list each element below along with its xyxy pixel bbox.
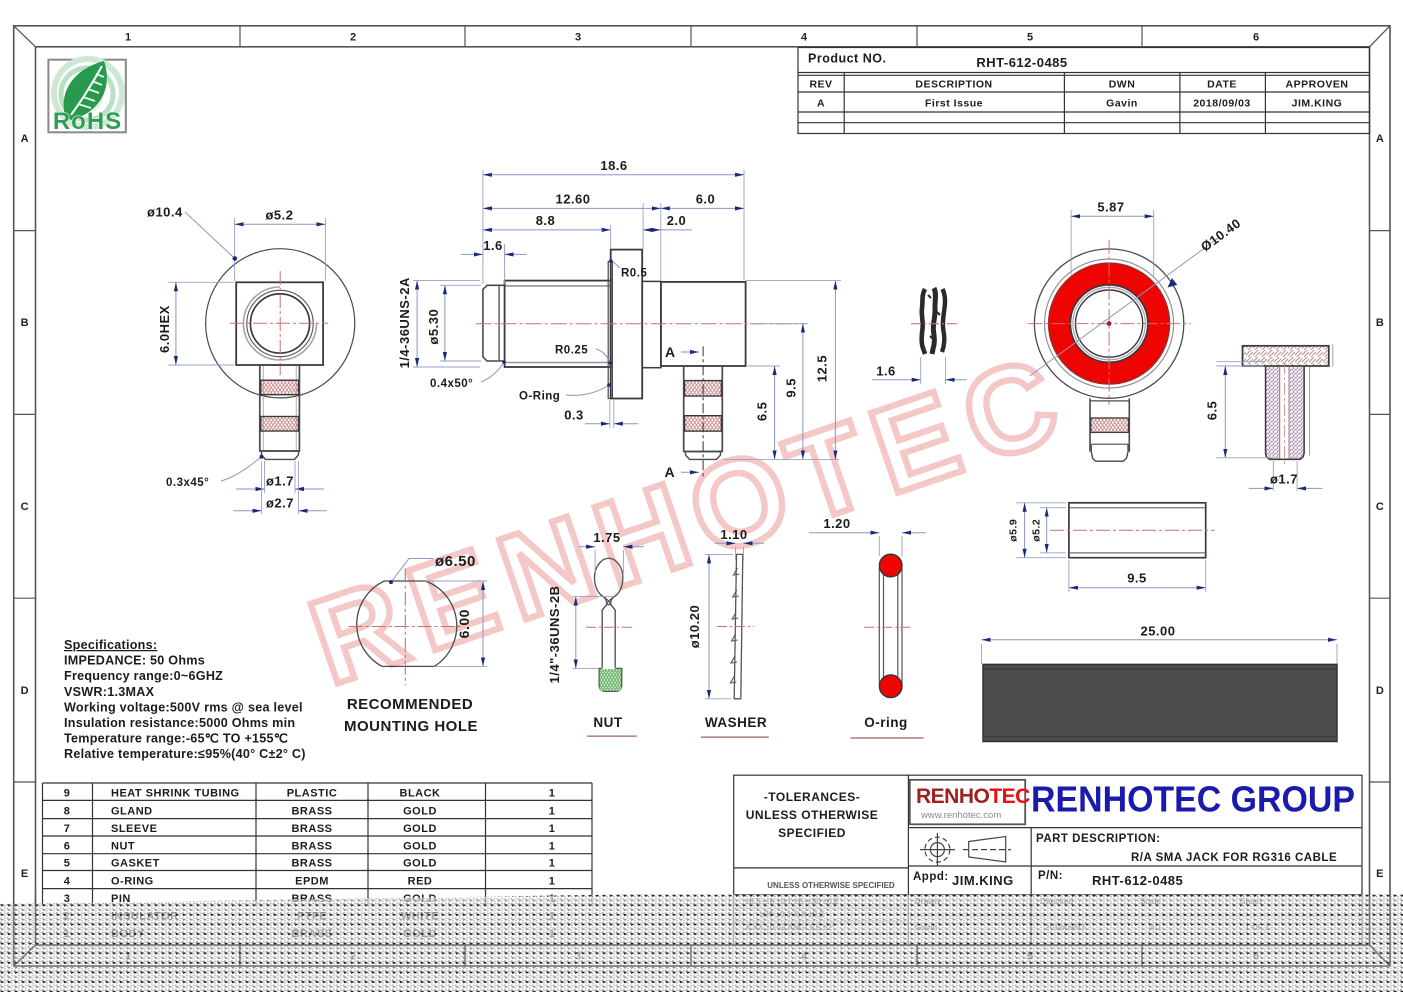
svg-text:1/4-36UNS-2A: 1/4-36UNS-2A (397, 277, 412, 368)
svg-text:A: A (665, 344, 676, 360)
svg-text:C: C (1376, 501, 1384, 513)
svg-text:Insulation resistance:5000 Ohm: Insulation resistance:5000 Ohms min (64, 716, 295, 730)
svg-text:1.20: 1.20 (823, 516, 850, 531)
svg-text:D: D (1376, 685, 1384, 697)
svg-text:ø6.50: ø6.50 (435, 553, 476, 570)
svg-text:18.6: 18.6 (600, 158, 627, 173)
svg-text:RHT-612-0485: RHT-612-0485 (1092, 873, 1183, 888)
svg-text:6.0HEX: 6.0HEX (157, 305, 172, 353)
svg-text:BRASS: BRASS (291, 823, 332, 835)
svg-text:O-ring: O-ring (864, 715, 908, 730)
svg-text:RED: RED (408, 875, 433, 887)
svg-text:ø5.2: ø5.2 (265, 208, 293, 223)
svg-text:6: 6 (1253, 32, 1259, 44)
svg-text:ø5.30: ø5.30 (426, 309, 441, 345)
svg-text:1: 1 (549, 858, 556, 870)
svg-text:1/4"-36UNS-2B: 1/4"-36UNS-2B (547, 586, 562, 684)
svg-text:GOLD: GOLD (403, 823, 437, 835)
svg-text:A: A (21, 133, 29, 145)
svg-text:Working voltage:500V rms @ sea: Working voltage:500V rms @ sea level (64, 700, 303, 714)
svg-text:ø1.7: ø1.7 (266, 474, 294, 489)
svg-text:APPROVEN: APPROVEN (1286, 79, 1349, 91)
svg-text:NUT: NUT (111, 841, 135, 853)
svg-text:RENHOTEC: RENHOTEC (916, 785, 1030, 808)
svg-text:1.6: 1.6 (876, 364, 896, 379)
svg-text:2018/09/03: 2018/09/03 (1193, 98, 1251, 110)
svg-text:6.5: 6.5 (1205, 401, 1220, 421)
svg-text:1.75: 1.75 (593, 530, 620, 545)
svg-text:E: E (21, 868, 28, 880)
svg-text:A: A (1376, 133, 1384, 145)
svg-text:UNLESS OTHERWISE: UNLESS OTHERWISE (746, 808, 878, 822)
svg-text:BRASS: BRASS (291, 806, 332, 818)
svg-text:A: A (665, 464, 676, 480)
svg-text:25.00: 25.00 (1140, 623, 1175, 638)
svg-text:BRASS: BRASS (291, 841, 332, 853)
svg-text:ø10.4: ø10.4 (147, 205, 183, 220)
svg-text:7: 7 (64, 823, 71, 835)
svg-text:A: A (817, 98, 825, 110)
svg-text:Relative temperature:≤95%(40°: Relative temperature:≤95%(40° C±2° C) (64, 747, 306, 761)
svg-text:GOLD: GOLD (403, 858, 437, 870)
svg-text:5: 5 (1027, 32, 1033, 44)
svg-text:VSWR:1.3MAX: VSWR:1.3MAX (64, 685, 155, 699)
svg-text:ø5.2: ø5.2 (1031, 519, 1043, 542)
svg-text:Gavin: Gavin (1106, 98, 1138, 110)
svg-text:1.10: 1.10 (720, 527, 747, 542)
svg-text:3: 3 (575, 32, 581, 44)
svg-text:C: C (21, 501, 29, 513)
svg-text:Product NO.: Product NO. (808, 52, 886, 66)
svg-text:RENHOTEC GROUP: RENHOTEC GROUP (1031, 779, 1355, 820)
svg-text:1.6: 1.6 (483, 238, 503, 253)
svg-text:RECOMMENDED: RECOMMENDED (347, 696, 473, 713)
svg-text:O-Ring: O-Ring (519, 391, 560, 403)
svg-text:GASKET: GASKET (111, 858, 160, 870)
svg-text:R0.25: R0.25 (555, 345, 588, 357)
svg-text:9.5: 9.5 (1127, 571, 1147, 586)
svg-text:1: 1 (549, 875, 556, 887)
svg-text:GOLD: GOLD (403, 806, 437, 818)
svg-text:1: 1 (125, 32, 131, 44)
svg-text:ø1.7: ø1.7 (1270, 472, 1298, 487)
svg-text:ø5.9: ø5.9 (1008, 519, 1020, 542)
svg-text:www.renhotec.com: www.renhotec.com (920, 810, 1001, 821)
svg-text:1: 1 (549, 788, 556, 800)
svg-text:SLEEVE: SLEEVE (111, 823, 157, 835)
svg-text:D: D (21, 685, 29, 697)
svg-text:REV: REV (809, 79, 832, 91)
svg-text:RHT-612-0485: RHT-612-0485 (976, 55, 1067, 70)
svg-text:DESCRIPTION: DESCRIPTION (915, 79, 992, 91)
svg-text:BRASS: BRASS (291, 858, 332, 870)
svg-text:BLACK: BLACK (400, 788, 441, 800)
svg-text:JIM.KING: JIM.KING (952, 873, 1014, 888)
svg-text:SPECIFIED: SPECIFIED (778, 826, 846, 840)
svg-text:6.00: 6.00 (456, 609, 472, 638)
svg-text:9: 9 (64, 788, 71, 800)
svg-text:DATE: DATE (1207, 79, 1237, 91)
svg-text:8.8: 8.8 (536, 213, 556, 228)
svg-text:4: 4 (801, 32, 808, 44)
svg-text:HEAT SHRINK TUBING: HEAT SHRINK TUBING (111, 788, 240, 800)
svg-text:5: 5 (64, 858, 71, 870)
svg-text:First Issue: First Issue (925, 98, 983, 110)
svg-text:5.87: 5.87 (1097, 200, 1124, 215)
svg-text:UNLESS OTHERWISE SPECIFIED: UNLESS OTHERWISE SPECIFIED (767, 881, 895, 890)
svg-text:R0.5: R0.5 (621, 268, 647, 280)
svg-text:EPDM: EPDM (295, 875, 329, 887)
svg-text:Frequency range:0~6GHZ: Frequency range:0~6GHZ (64, 669, 223, 683)
svg-text:9.5: 9.5 (784, 378, 799, 398)
svg-text:PART DESCRIPTION:: PART DESCRIPTION: (1036, 833, 1161, 845)
svg-text:2.0: 2.0 (667, 213, 687, 228)
svg-text:GOLD: GOLD (403, 841, 437, 853)
svg-text:GLAND: GLAND (111, 806, 153, 818)
svg-text:Appd:: Appd: (913, 871, 949, 883)
svg-text:RoHS: RoHS (53, 108, 122, 135)
svg-text:1: 1 (549, 841, 556, 853)
svg-text:-TOLERANCES-: -TOLERANCES- (764, 790, 860, 804)
svg-text:6.0: 6.0 (696, 192, 716, 207)
svg-text:Specifications:: Specifications: (64, 638, 157, 652)
svg-text:Temperature range:-65℃ TO +155: Temperature range:-65℃ TO +155℃ (64, 732, 288, 746)
svg-text:NUT: NUT (593, 715, 622, 730)
svg-text:DWN: DWN (1109, 79, 1136, 91)
svg-text:8: 8 (64, 806, 71, 818)
svg-text:B: B (1376, 317, 1384, 329)
svg-text:2: 2 (350, 32, 356, 44)
svg-text:0.3: 0.3 (564, 408, 584, 423)
svg-text:1: 1 (549, 823, 556, 835)
svg-text:ø10.20: ø10.20 (687, 605, 702, 648)
svg-text:6.5: 6.5 (755, 402, 770, 422)
svg-text:1: 1 (549, 806, 556, 818)
svg-text:PLASTIC: PLASTIC (287, 788, 338, 800)
svg-text:0.4x50°: 0.4x50° (430, 378, 473, 390)
svg-text:WASHER: WASHER (705, 715, 767, 730)
svg-text:4: 4 (64, 875, 71, 887)
svg-text:MOUNTING HOLE: MOUNTING HOLE (344, 718, 478, 735)
svg-text:0.3x45°: 0.3x45° (166, 477, 209, 489)
svg-text:IMPEDANCE: 50 Ohms: IMPEDANCE: 50 Ohms (64, 654, 205, 668)
svg-text:ø2.7: ø2.7 (266, 496, 294, 511)
svg-text:JIM.KING: JIM.KING (1292, 98, 1343, 110)
svg-text:R/A SMA JACK FOR RG316 CABLE: R/A SMA JACK FOR RG316 CABLE (1131, 852, 1337, 864)
svg-text:O-RING: O-RING (111, 875, 154, 887)
svg-text:12.5: 12.5 (815, 355, 830, 382)
svg-text:B: B (21, 317, 29, 329)
svg-text:P/N:: P/N: (1038, 870, 1063, 882)
svg-text:E: E (1376, 868, 1383, 880)
svg-text:6: 6 (64, 841, 71, 853)
svg-text:12.60: 12.60 (555, 192, 590, 207)
